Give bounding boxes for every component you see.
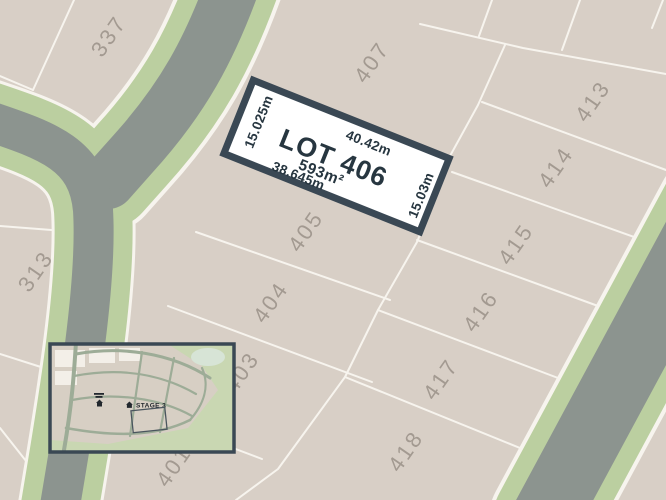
estate-map: 337 407 413 414 415 416 417 418 405 404 … <box>0 0 666 500</box>
marker-text-line <box>94 393 104 395</box>
map-canvas: 337 407 413 414 415 416 417 418 405 404 … <box>0 0 666 500</box>
mini-map-inset: STAGE 3 <box>50 342 234 452</box>
marker-text-line <box>96 396 103 398</box>
mini-map-pond <box>191 348 225 366</box>
